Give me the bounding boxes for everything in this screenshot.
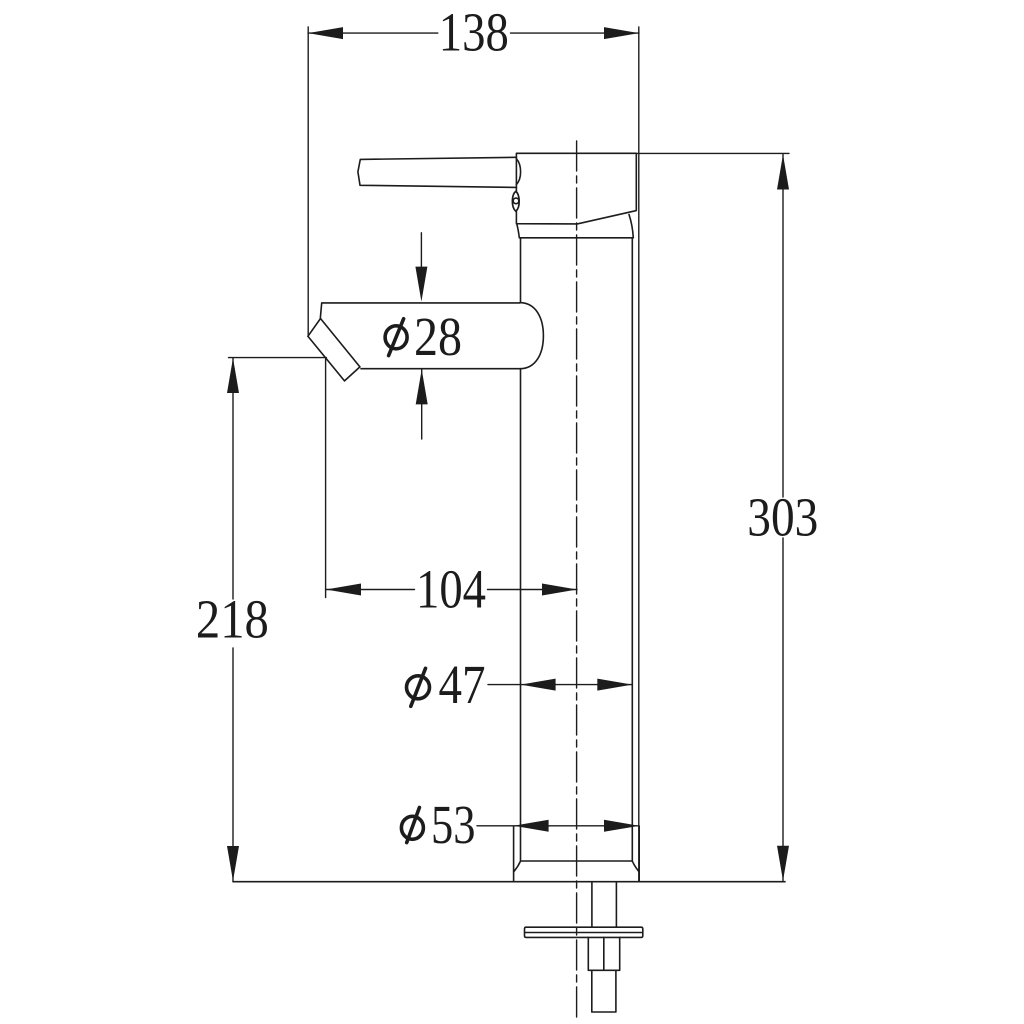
svg-text:138: 138 xyxy=(439,2,509,63)
svg-text:303: 303 xyxy=(747,487,818,548)
svg-text:28: 28 xyxy=(414,306,462,367)
svg-text:104: 104 xyxy=(416,558,486,619)
svg-text:218: 218 xyxy=(196,589,269,650)
svg-text:53: 53 xyxy=(431,794,476,855)
svg-text:47: 47 xyxy=(439,654,486,715)
